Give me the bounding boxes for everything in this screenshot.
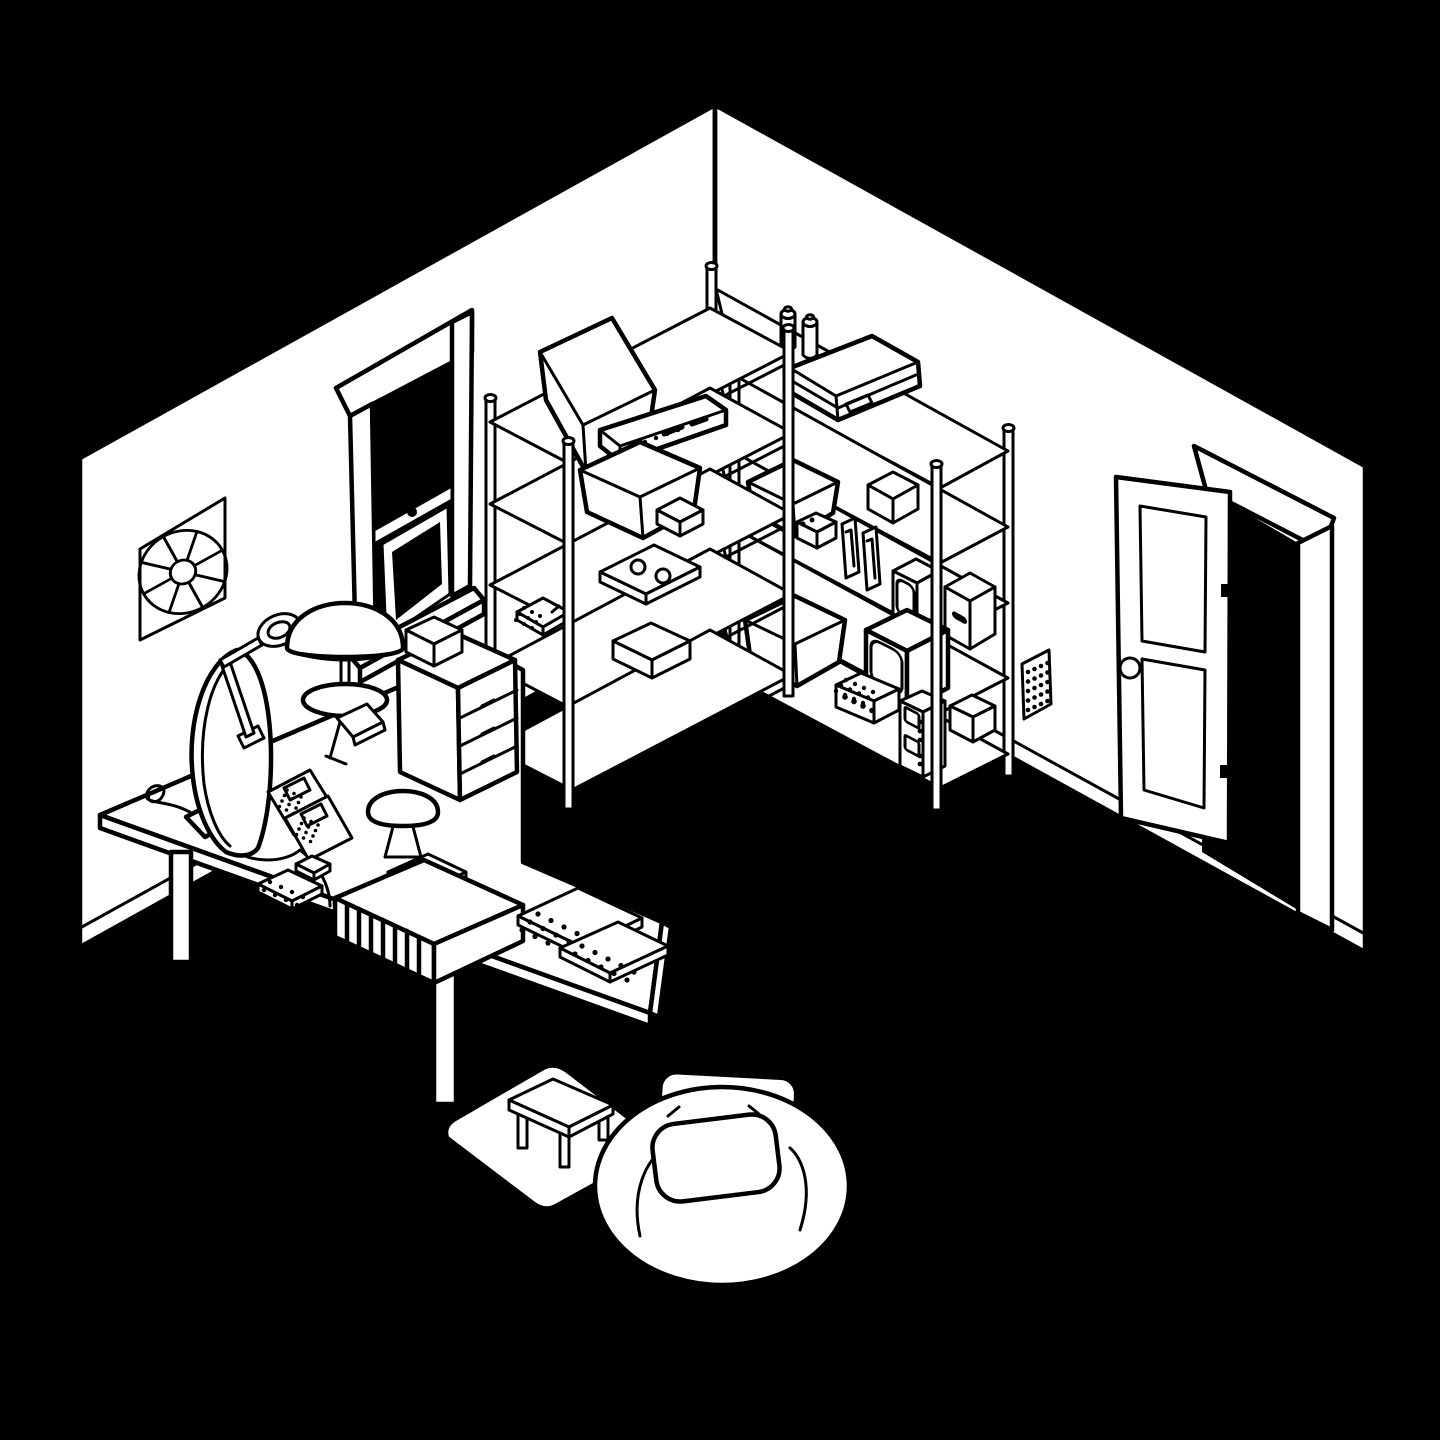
window-lock-icon: [407, 507, 417, 517]
bean-bag: [595, 1071, 849, 1285]
window-right-jamb: [452, 312, 472, 596]
room-illustration: Black-and-white isometric cutaway illust…: [0, 0, 1440, 1440]
desk-leg: [171, 852, 191, 962]
door-right-jamb: [1298, 526, 1332, 930]
isometric-room-scene: Black-and-white isometric cutaway illust…: [0, 0, 1440, 1440]
door-hinge-icon: [1220, 765, 1227, 778]
door-panel: [1116, 477, 1230, 843]
small-shelf-box: [950, 695, 995, 742]
bean-bag-pillow: [650, 1112, 783, 1205]
door: [1116, 446, 1334, 930]
door-hinge-icon: [1221, 584, 1228, 597]
door-knob: [1120, 658, 1140, 678]
spray-can: [803, 315, 817, 359]
cardboard-box: [945, 573, 995, 649]
